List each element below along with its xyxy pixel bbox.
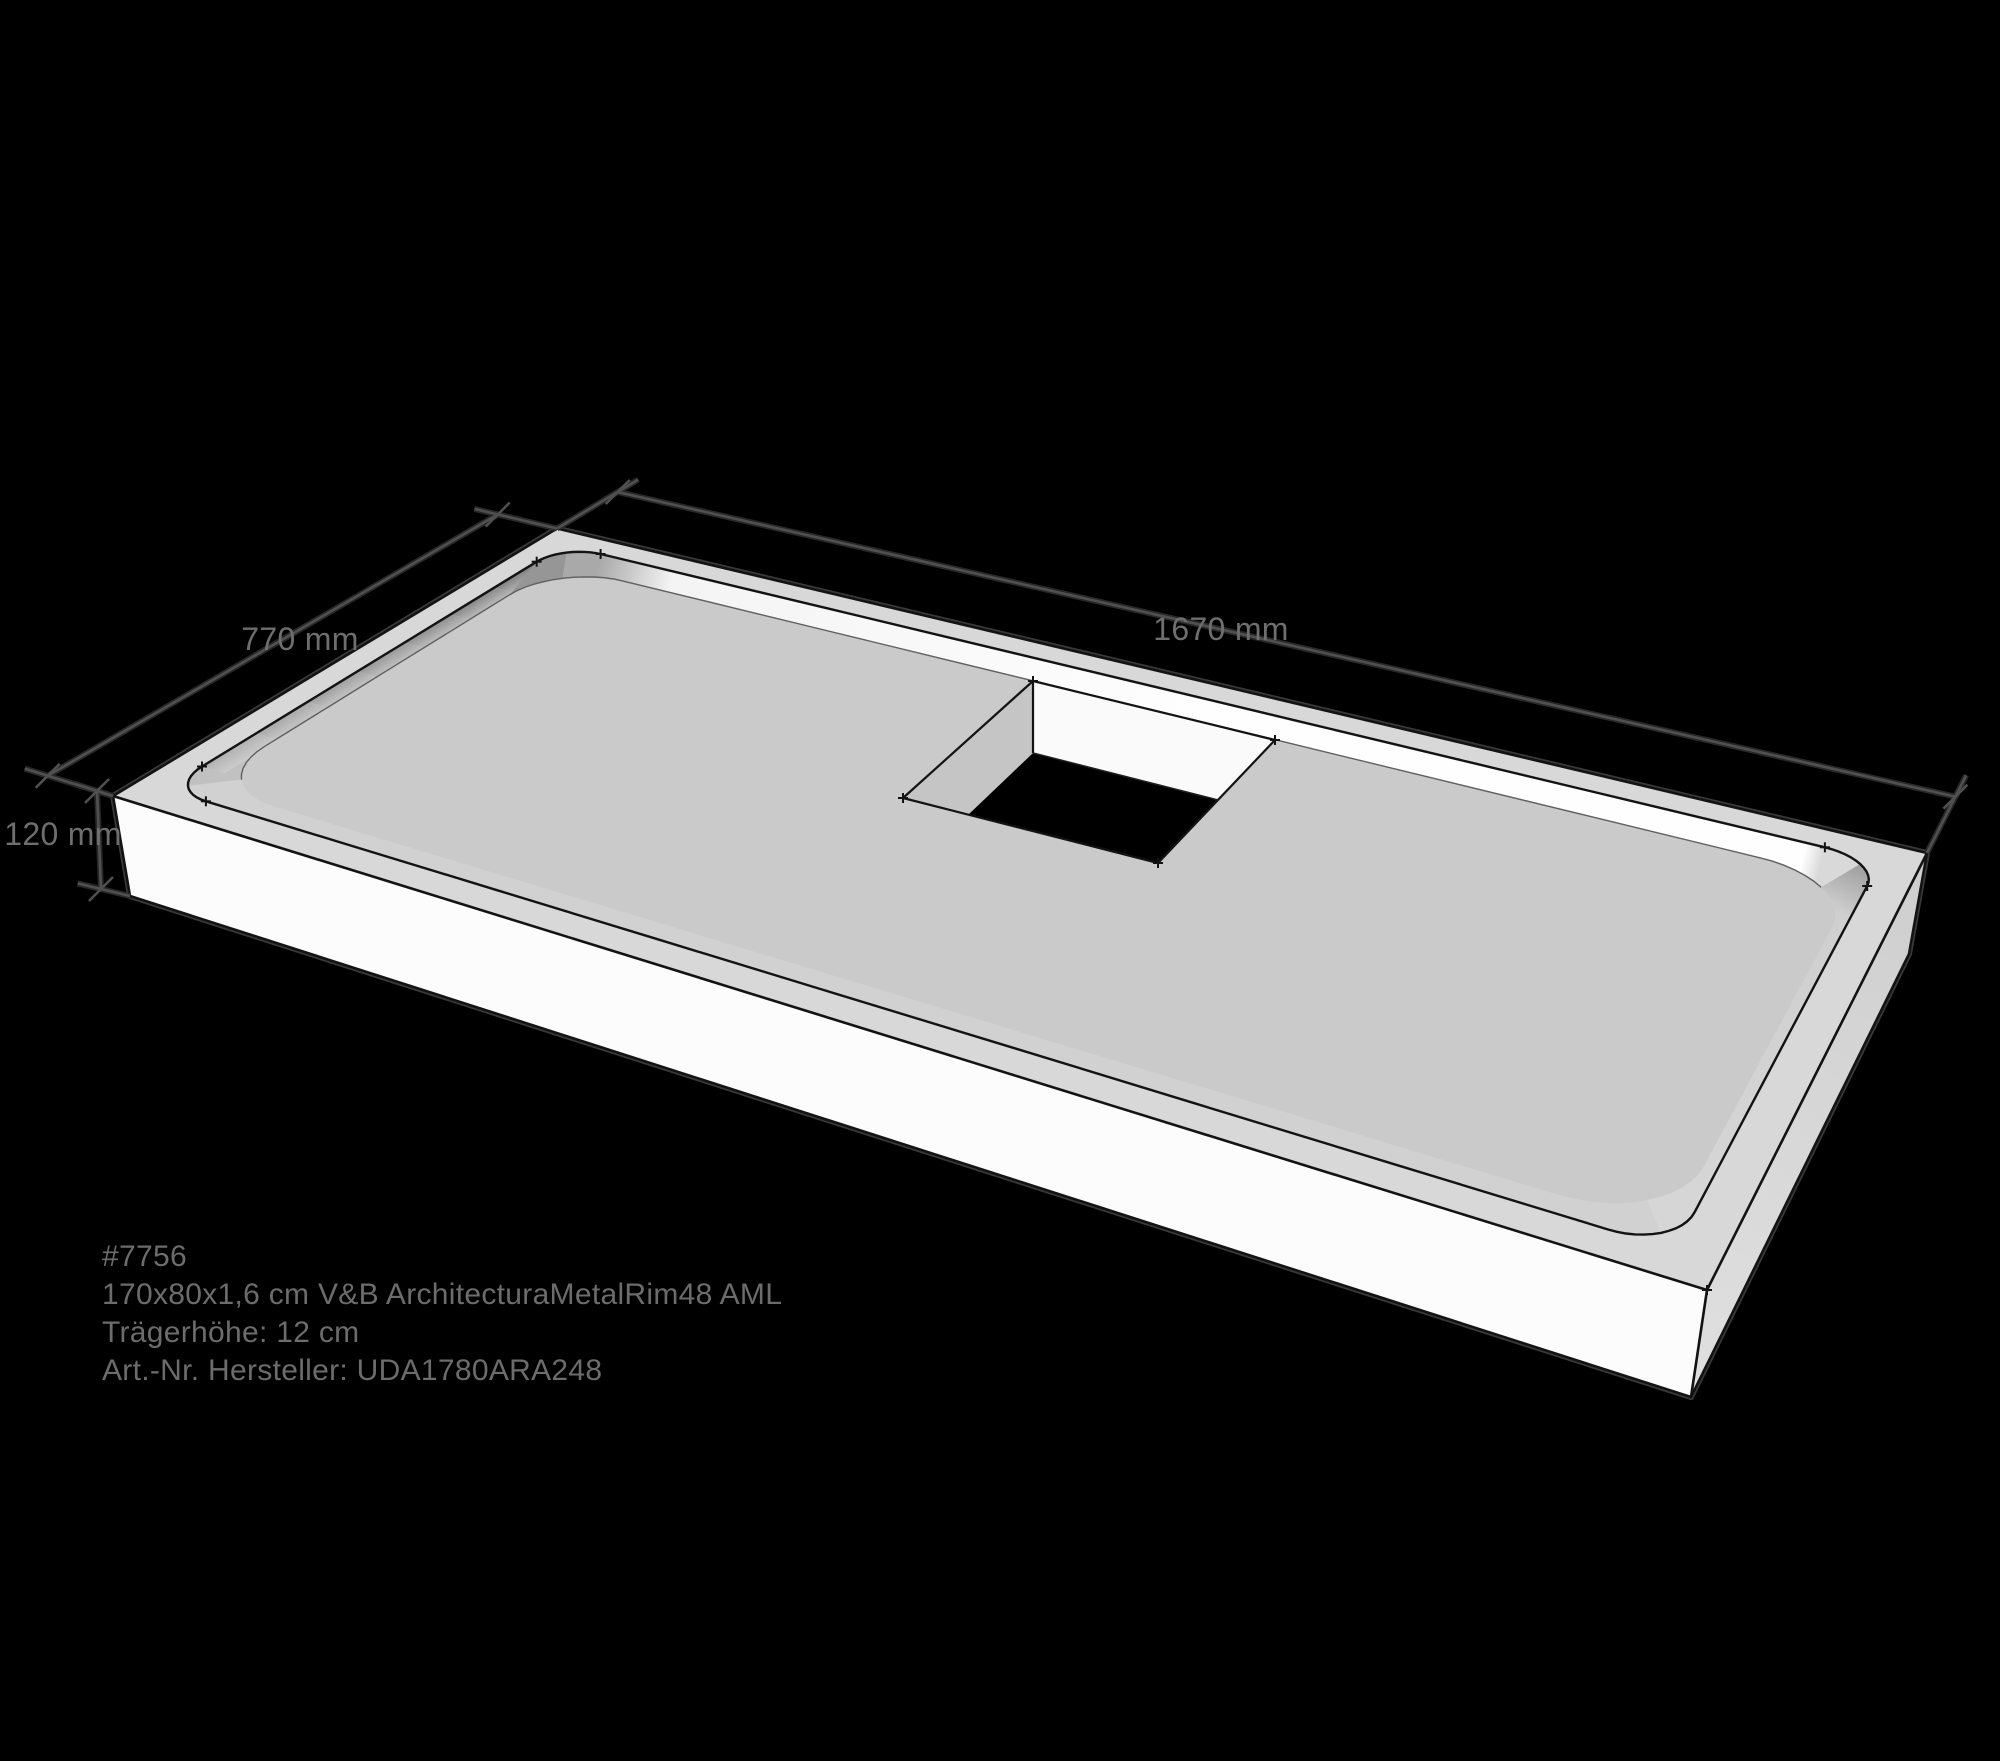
svg-text:120 mm: 120 mm bbox=[4, 816, 121, 852]
svg-text:#7756: #7756 bbox=[102, 1240, 187, 1273]
svg-text:1670 mm: 1670 mm bbox=[1153, 611, 1289, 647]
svg-text:170x80x1,6 cm V&B Architectura: 170x80x1,6 cm V&B ArchitecturaMetalRim48… bbox=[102, 1278, 782, 1311]
svg-text:Art.-Nr. Hersteller: UDA1780AR: Art.-Nr. Hersteller: UDA1780ARA248 bbox=[102, 1354, 602, 1387]
svg-text:770 mm: 770 mm bbox=[241, 621, 358, 657]
svg-text:Trägerhöhe: 12 cm: Trägerhöhe: 12 cm bbox=[102, 1316, 359, 1349]
